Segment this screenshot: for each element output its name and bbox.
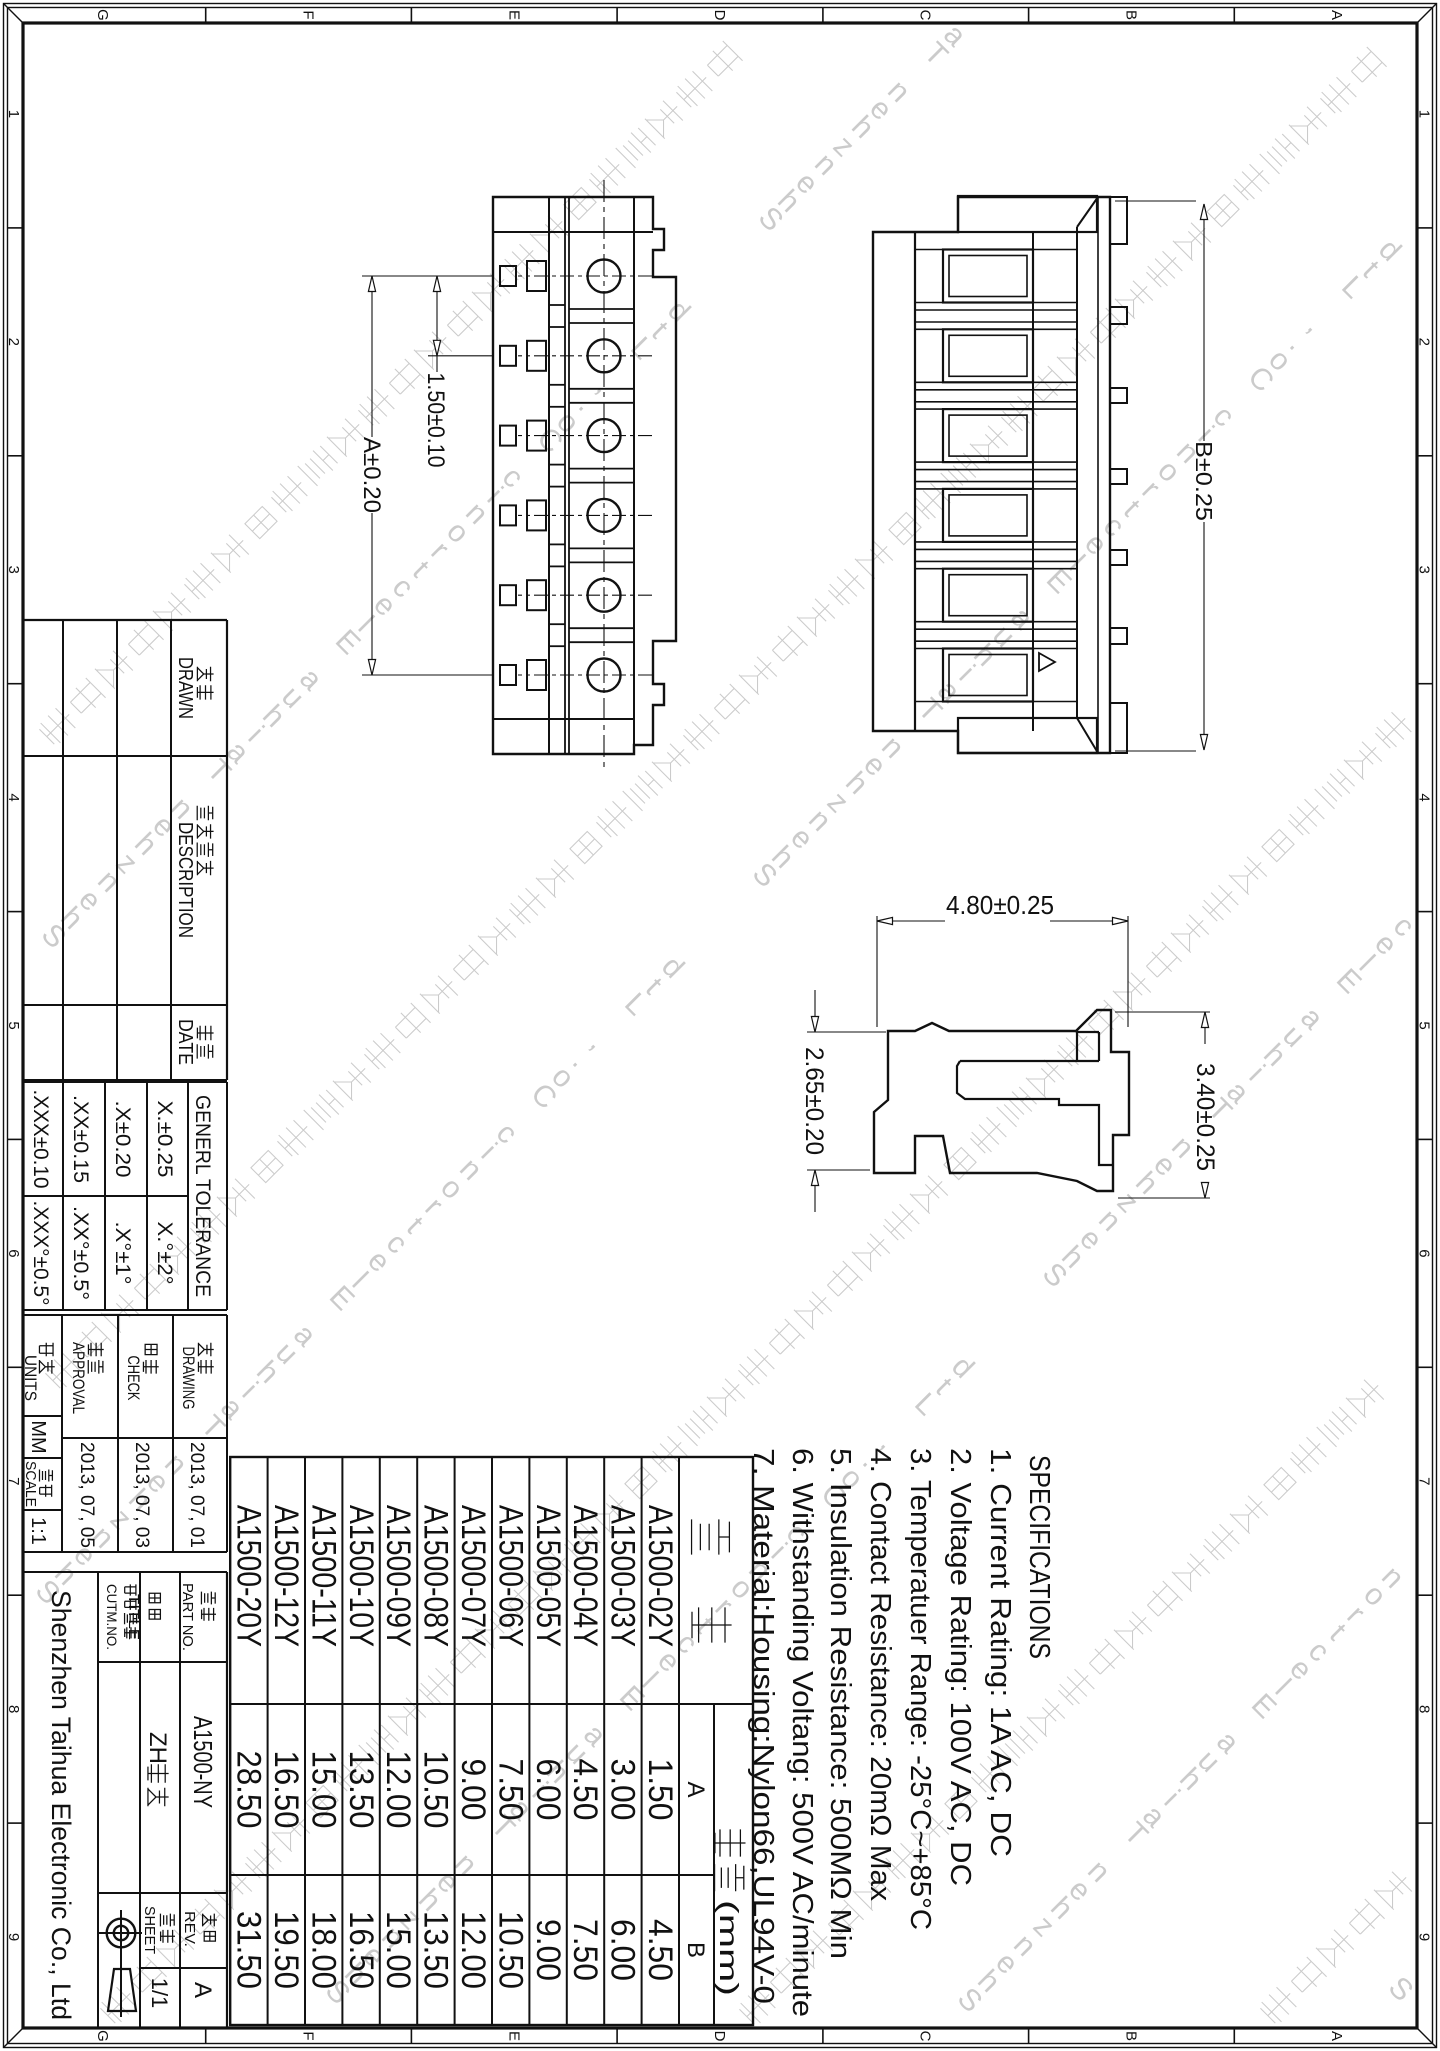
svg-text:CUTM.NO.: CUTM.NO. (104, 1584, 120, 1650)
svg-text:15.00: 15.00 (379, 1911, 417, 1989)
svg-text:2013, 07, 03: 2013, 07, 03 (131, 1442, 152, 1548)
svg-text:SHEET: SHEET (141, 1906, 158, 1954)
svg-text:4. Contact Resistance: 20mΩ Ma: 4. Contact Resistance: 20mΩ Max (864, 1448, 896, 1902)
svg-text:1. Current Rating: 1A AC, DC: 1. Current Rating: 1A AC, DC (984, 1448, 1016, 1857)
svg-text:4: 4 (1416, 793, 1433, 801)
svg-text:A: A (1328, 10, 1345, 20)
svg-text:6.00: 6.00 (604, 1919, 642, 1981)
svg-text:9: 9 (1416, 1933, 1433, 1941)
svg-text:A1500-10Y: A1500-10Y (342, 1505, 380, 1647)
svg-text:1.50: 1.50 (641, 1759, 679, 1821)
svg-text:4.50: 4.50 (641, 1919, 679, 1981)
svg-text:Shenzhen Taihua Electronic Co.: Shenzhen Taihua Electronic Co., Ltd (46, 1590, 76, 2020)
svg-text:12.00: 12.00 (454, 1911, 492, 1989)
svg-text:2: 2 (1416, 338, 1433, 346)
svg-text:A1500-12Y: A1500-12Y (267, 1505, 305, 1647)
svg-text:.XX°±0.5°: .XX°±0.5° (69, 1206, 92, 1300)
svg-text:ZH: ZH (144, 1732, 171, 1764)
svg-text:.XX±0.15: .XX±0.15 (69, 1095, 92, 1183)
svg-text:7: 7 (5, 1477, 22, 1485)
svg-text:X.°±2°: X.°±2° (153, 1222, 176, 1285)
svg-text:3: 3 (1416, 566, 1433, 574)
svg-text:MM: MM (27, 1420, 49, 1453)
svg-text:9.00: 9.00 (454, 1759, 492, 1821)
svg-text:2.65±0.20: 2.65±0.20 (800, 1047, 828, 1155)
svg-text:7.50: 7.50 (491, 1759, 529, 1821)
svg-text:10.50: 10.50 (491, 1911, 529, 1989)
svg-text:6.00: 6.00 (529, 1759, 567, 1821)
svg-text:A: A (1328, 2031, 1345, 2041)
svg-text:8: 8 (5, 1705, 22, 1713)
svg-text:2: 2 (5, 338, 22, 346)
svg-text:2013, 07, 05: 2013, 07, 05 (76, 1442, 97, 1548)
svg-text:2. Voltage Rating: 100V AC, DC: 2. Voltage Rating: 100V AC, DC (944, 1448, 976, 1886)
svg-text:10.50: 10.50 (417, 1751, 455, 1829)
svg-text:A1500-03Y: A1500-03Y (604, 1505, 642, 1647)
svg-text:6: 6 (1416, 1249, 1433, 1257)
svg-text:E: E (505, 10, 522, 20)
svg-text:E: E (505, 2031, 522, 2041)
svg-text:28.50: 28.50 (230, 1751, 268, 1829)
svg-text:4: 4 (5, 793, 22, 801)
svg-text:A1500-NY: A1500-NY (188, 1716, 218, 1808)
svg-text:8: 8 (1416, 1705, 1433, 1713)
svg-text:A: A (189, 1982, 216, 1998)
svg-text:.X±0.20: .X±0.20 (111, 1101, 134, 1178)
svg-text:5: 5 (1416, 1021, 1433, 1029)
svg-text:1: 1 (1416, 110, 1433, 118)
svg-text:DRAWN: DRAWN (174, 657, 196, 719)
svg-text:B±0.25: B±0.25 (1191, 441, 1217, 521)
svg-text:D: D (711, 2031, 728, 2042)
svg-text:7.50: 7.50 (566, 1919, 604, 1981)
svg-text:(mm): (mm) (714, 1900, 744, 1996)
svg-text:6: 6 (5, 1249, 22, 1257)
svg-text:1: 1 (5, 110, 22, 118)
svg-text:3: 3 (5, 566, 22, 574)
svg-text:.X°±1°: .X°±1° (111, 1222, 134, 1285)
svg-text:2013, 07, 01: 2013, 07, 01 (186, 1442, 207, 1548)
svg-text:GENERL TOLERANCE: GENERL TOLERANCE (191, 1095, 214, 1297)
svg-text:B: B (1122, 10, 1139, 20)
svg-text:4.50: 4.50 (566, 1759, 604, 1821)
svg-text:A1500-06Y: A1500-06Y (491, 1505, 529, 1647)
svg-text:9: 9 (5, 1933, 22, 1941)
svg-text:1.50±0.10: 1.50±0.10 (422, 373, 449, 468)
svg-text:UNITS: UNITS (21, 1355, 40, 1401)
svg-text:3.00: 3.00 (604, 1759, 642, 1821)
svg-text:F: F (300, 10, 317, 19)
svg-text:X.±0.25: X.±0.25 (153, 1101, 176, 1178)
svg-text:16.50: 16.50 (342, 1911, 380, 1989)
svg-text:REV.: REV. (181, 1911, 198, 1947)
svg-text:13.50: 13.50 (342, 1751, 380, 1829)
svg-text:DATE: DATE (174, 1019, 196, 1065)
svg-text:12.00: 12.00 (379, 1751, 417, 1829)
svg-text:7: 7 (1416, 1477, 1433, 1485)
svg-text:1/1: 1/1 (147, 1978, 172, 2009)
svg-text:C: C (917, 2031, 934, 2042)
svg-text:APPROVAL: APPROVAL (69, 1342, 88, 1414)
svg-text:9.00: 9.00 (529, 1919, 567, 1981)
svg-text:A1500-09Y: A1500-09Y (379, 1505, 417, 1647)
svg-text:C: C (917, 10, 934, 21)
svg-text:.XXX±0.10: .XXX±0.10 (29, 1090, 52, 1189)
svg-text:A1500-02Y: A1500-02Y (641, 1505, 679, 1647)
svg-text:CHECK: CHECK (124, 1356, 143, 1401)
svg-text:SCALE: SCALE (22, 1461, 39, 1507)
svg-text:G: G (94, 9, 111, 21)
svg-text:A1500-05Y: A1500-05Y (529, 1505, 567, 1647)
svg-text:A: A (682, 1781, 709, 1797)
svg-text:3.40±0.25: 3.40±0.25 (1191, 1063, 1219, 1171)
svg-text:B: B (1122, 2031, 1139, 2041)
svg-text:D: D (711, 10, 728, 21)
svg-text:A1500-20Y: A1500-20Y (230, 1505, 268, 1647)
svg-text:B: B (682, 1942, 709, 1958)
svg-text:A1500-04Y: A1500-04Y (566, 1505, 604, 1647)
svg-text:DESCRIPTION: DESCRIPTION (174, 822, 196, 938)
svg-text:3. Temperatuer Range: -25°C~+8: 3. Temperatuer Range: -25°C~+85°C (904, 1448, 936, 1930)
svg-text:1:1: 1:1 (27, 1517, 49, 1545)
svg-text:SPECIFICATIONS: SPECIFICATIONS (1023, 1455, 1055, 1659)
svg-text:13.50: 13.50 (417, 1911, 455, 1989)
svg-text:A±0.20: A±0.20 (358, 437, 385, 513)
svg-text:5: 5 (5, 1021, 22, 1029)
svg-text:A1500-07Y: A1500-07Y (454, 1505, 492, 1647)
svg-text:F: F (300, 2031, 317, 2040)
svg-text:DRAWING: DRAWING (179, 1347, 198, 1410)
svg-text:A1500-08Y: A1500-08Y (417, 1505, 455, 1647)
svg-text:PART NO.: PART NO. (179, 1583, 196, 1651)
svg-text:5. Insulation Resistance: 500M: 5. Insulation Resistance: 500MΩ Min (824, 1448, 856, 1959)
svg-text:6. Withstanding Voltang: 500V: 6. Withstanding Voltang: 500V AC/minute (786, 1448, 818, 2017)
svg-text:31.50: 31.50 (230, 1911, 268, 1989)
svg-text:16.50: 16.50 (267, 1751, 305, 1829)
svg-text:G: G (94, 2030, 111, 2042)
svg-text:4.80±0.25: 4.80±0.25 (946, 890, 1054, 920)
svg-text:.XXX°±0.5°: .XXX°±0.5° (29, 1201, 52, 1306)
svg-text:18.00: 18.00 (304, 1911, 342, 1989)
svg-text:15.00: 15.00 (304, 1751, 342, 1829)
svg-text:A1500-11Y: A1500-11Y (304, 1505, 342, 1647)
svg-text:19.50: 19.50 (267, 1911, 305, 1989)
